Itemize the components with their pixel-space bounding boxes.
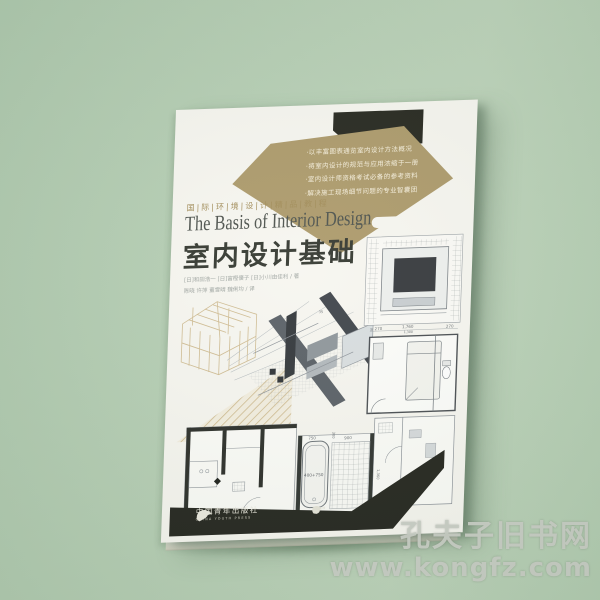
photo-background: 35 ≤ 270 1,760 bbox=[0, 0, 600, 600]
watermark-site-url: www.kongfz.com bbox=[329, 553, 592, 583]
publisher-eagle-logo-icon bbox=[196, 508, 213, 522]
svg-text:1,760: 1,760 bbox=[402, 324, 414, 329]
imprint-block: 中青雄狮 bbox=[312, 505, 326, 510]
svg-text:1,300: 1,300 bbox=[404, 330, 413, 334]
svg-text:750: 750 bbox=[308, 435, 316, 440]
publisher-block: 中国青年出版社 CHINA YOUTH PRESS bbox=[196, 506, 259, 521]
svg-text:270: 270 bbox=[446, 323, 454, 328]
book-title-chinese: 室内设计基础 bbox=[182, 230, 357, 275]
author-credits: [日]和田浩一 [日]富樫優子 [日]小川由佳利 / 著 陈晓 许萍 董雪晴 魏… bbox=[183, 272, 299, 298]
svg-text:900: 900 bbox=[344, 435, 352, 440]
svg-text:35: 35 bbox=[319, 310, 324, 314]
gold-banner-bullets: ·以丰富图表通览室内设计方法概况 ·将室内设计的规范与应用浓缩于一册 ·室内设计… bbox=[305, 142, 437, 201]
book-front-cover: 35 ≤ 270 1,760 bbox=[161, 99, 478, 542]
book: 35 ≤ 270 1,760 bbox=[161, 99, 478, 551]
svg-text:≤ 270: ≤ 270 bbox=[370, 326, 383, 331]
watermark-site-name: 孔夫子旧书网 bbox=[329, 520, 592, 553]
white-pill-shape bbox=[372, 215, 426, 228]
svg-text:1,360: 1,360 bbox=[376, 469, 380, 480]
imprint-lion-logo-icon bbox=[312, 505, 322, 514]
tv-wall-elevation bbox=[364, 234, 463, 326]
kongfz-watermark: 孔夫子旧书网 www.kongfz.com bbox=[329, 520, 592, 583]
bedroom-floor-plan: ≤ 270 1,760 1,300 270 bbox=[367, 322, 458, 413]
svg-text:300: 300 bbox=[331, 432, 335, 440]
svg-text:400+750: 400+750 bbox=[304, 472, 324, 478]
